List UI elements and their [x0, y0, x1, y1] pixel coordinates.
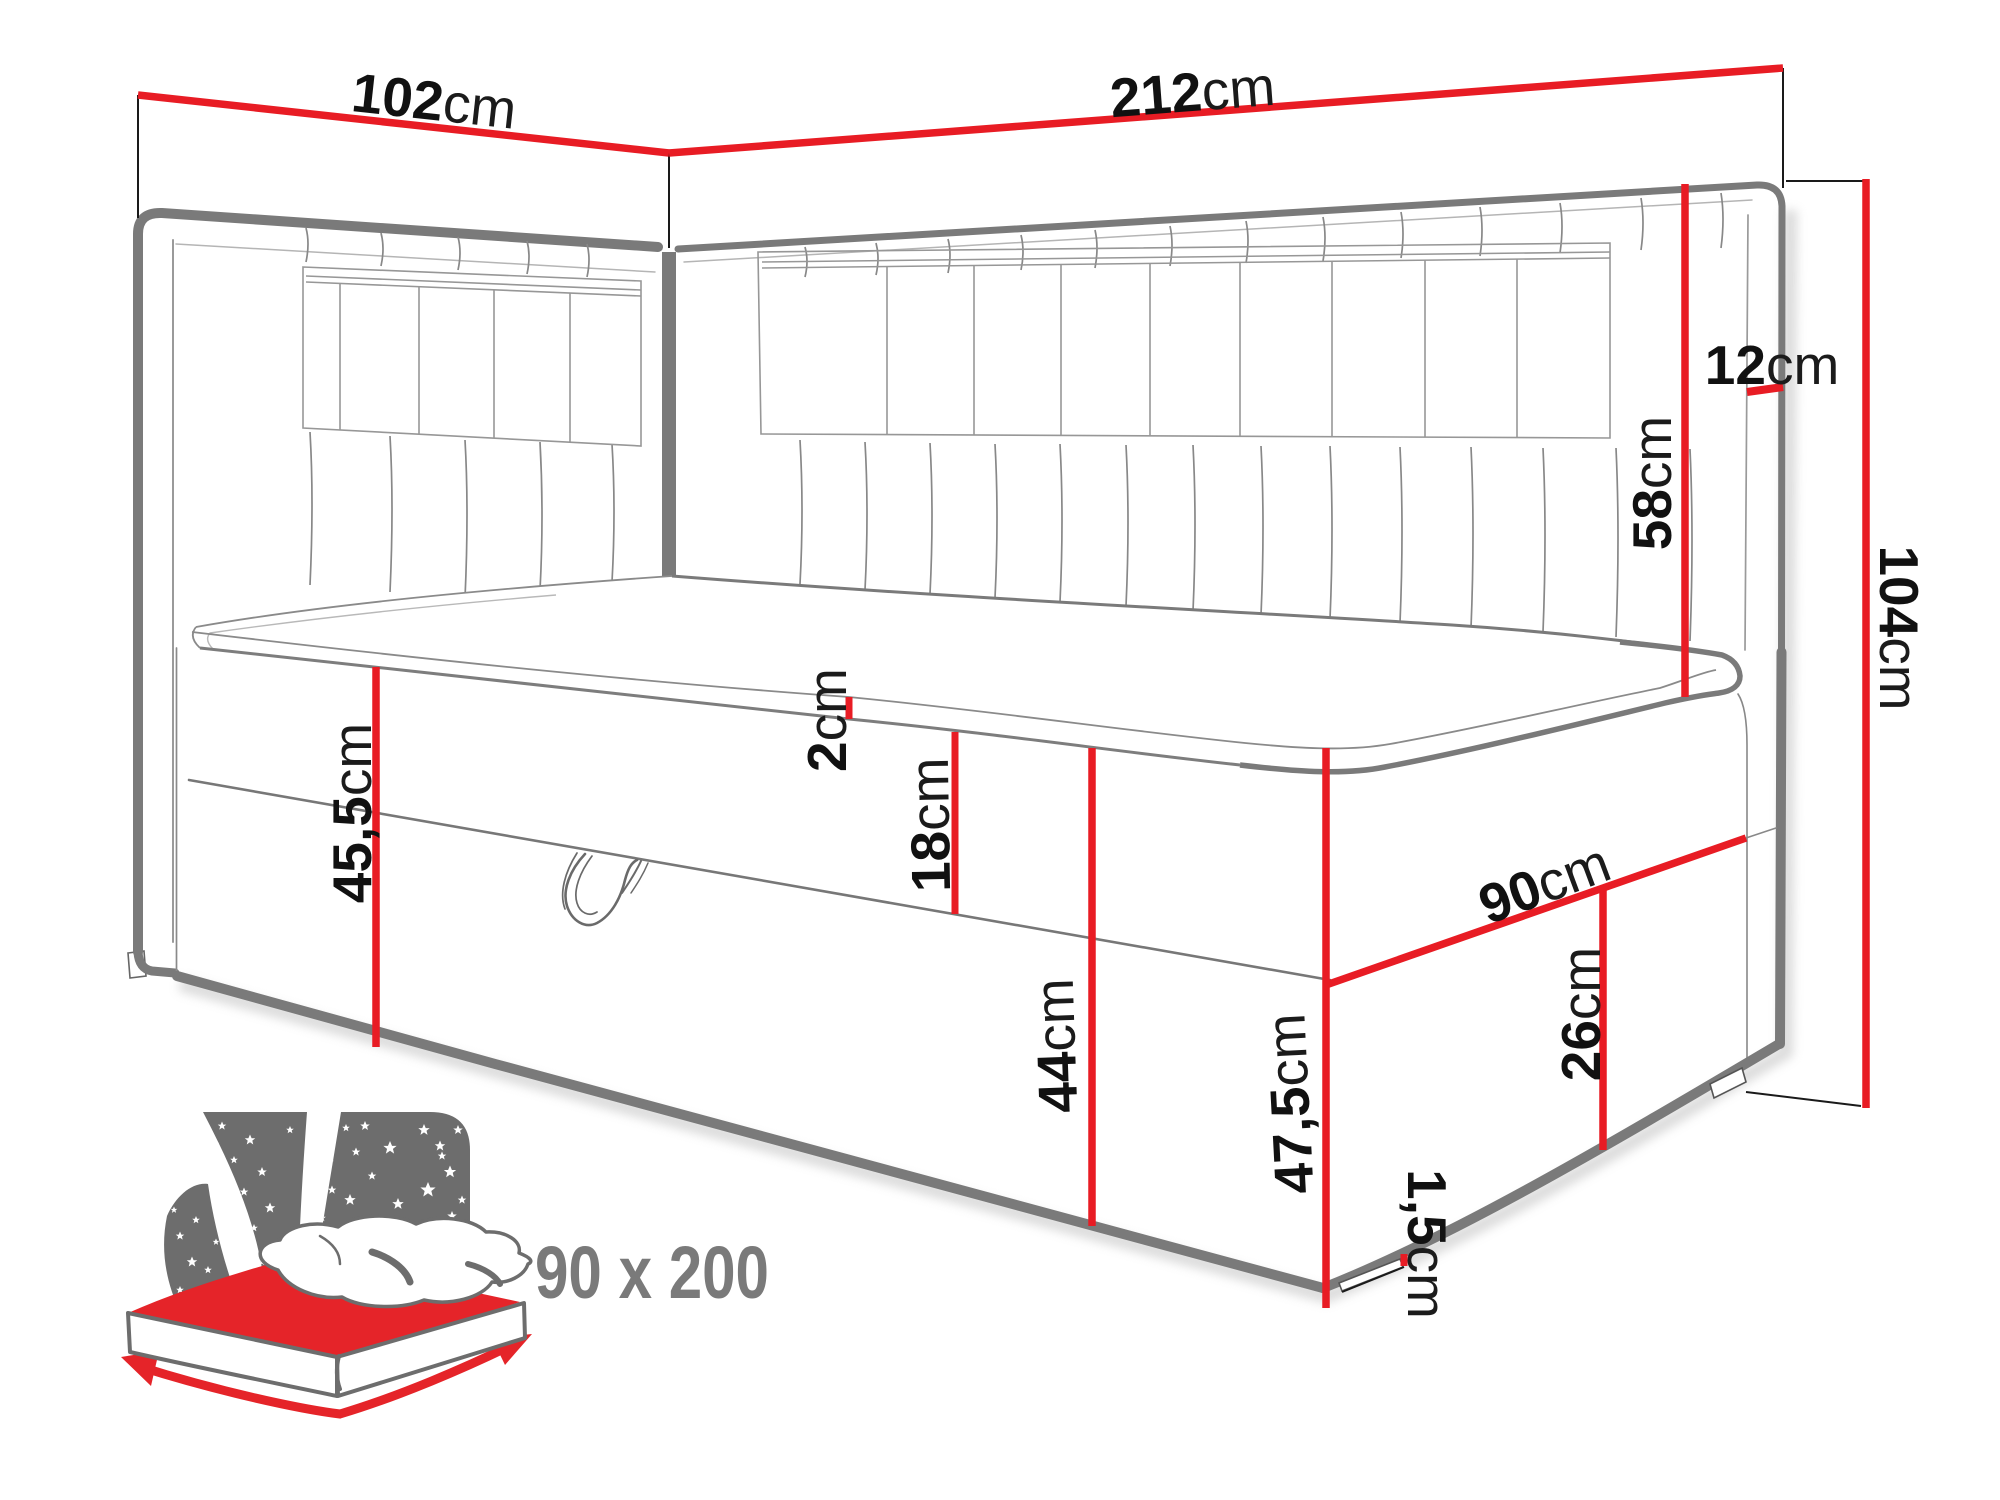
svg-text:58cm: 58cm: [1621, 416, 1683, 551]
svg-text:90 x 200: 90 x 200: [535, 1231, 769, 1314]
svg-text:2cm: 2cm: [796, 668, 858, 772]
svg-text:44cm: 44cm: [1023, 977, 1090, 1114]
svg-text:12cm: 12cm: [1705, 334, 1840, 396]
svg-text:212cm: 212cm: [1108, 55, 1277, 129]
svg-text:104cm: 104cm: [1868, 545, 1930, 710]
svg-text:1,5cm: 1,5cm: [1396, 1169, 1458, 1319]
svg-text:45,5cm: 45,5cm: [321, 723, 383, 903]
svg-text:18cm: 18cm: [898, 757, 962, 893]
svg-text:26cm: 26cm: [1550, 947, 1612, 1082]
svg-text:102cm: 102cm: [349, 61, 520, 141]
svg-text:90cm: 90cm: [1471, 831, 1619, 936]
svg-text:47,5cm: 47,5cm: [1254, 1012, 1325, 1195]
